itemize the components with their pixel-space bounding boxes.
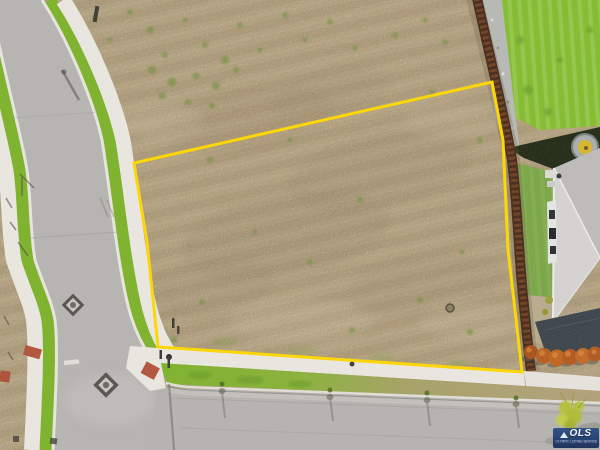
mountain-icon xyxy=(560,432,568,438)
mls-watermark: OLS OLYMPIC LISTING SERVICE xyxy=(553,428,599,448)
photo-grain-overlay xyxy=(0,0,600,450)
watermark-abbr: OLS xyxy=(569,429,591,439)
scene-svg xyxy=(0,0,600,450)
watermark-name: OLYMPIC LISTING SERVICE xyxy=(555,440,597,443)
aerial-photo: OLS OLYMPIC LISTING SERVICE xyxy=(0,0,600,450)
